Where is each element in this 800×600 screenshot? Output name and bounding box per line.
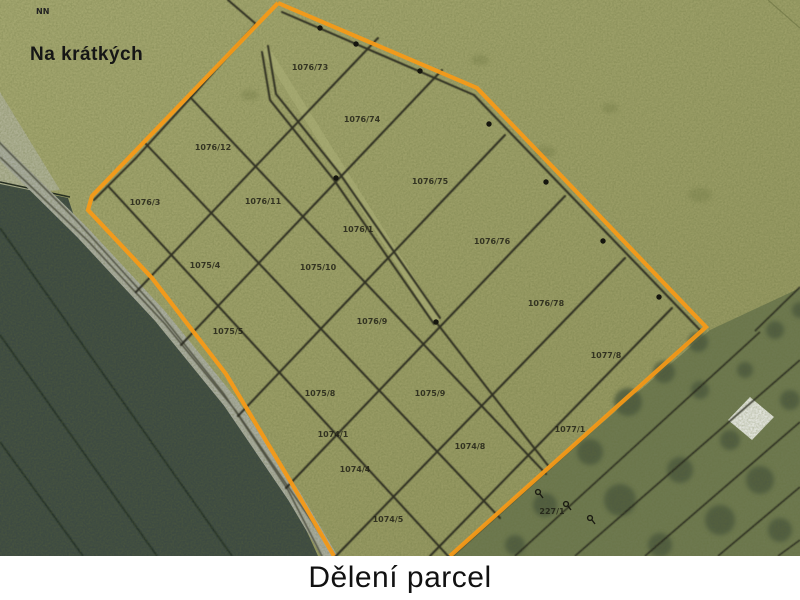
- boundary-point-dot: [317, 25, 322, 30]
- image-caption: Dělení parcel: [308, 561, 491, 595]
- parcel-label: 1076/11: [245, 197, 282, 206]
- parcel-label: 1075/5: [213, 327, 244, 336]
- caption-bar: Dělení parcel: [0, 556, 800, 600]
- parcel-label: 1075/8: [305, 389, 336, 398]
- boundary-point-dot: [656, 294, 661, 299]
- boundary-point-dot: [353, 41, 358, 46]
- parcel-label: 1076/74: [344, 115, 381, 124]
- parcel-label: 227/1: [539, 507, 565, 516]
- parcel-label: 1074/5: [373, 515, 404, 524]
- parcel-label: 1076/73: [292, 63, 328, 72]
- parcel-label: 1074/1: [318, 430, 349, 439]
- boundary-point-dot: [333, 175, 338, 180]
- parcel-label: 1076/1: [343, 225, 374, 234]
- parcel-label: 1076/3: [130, 198, 161, 207]
- parcel-label: 1075/9: [415, 389, 446, 398]
- parcel-label: 1075/10: [300, 263, 337, 272]
- photo-noise: [0, 0, 800, 556]
- aerial-map-container: 1076/731076/741076/751076/761076/781077/…: [0, 0, 800, 556]
- parcel-label: 1077/1: [555, 425, 586, 434]
- boundary-point-dot: [433, 319, 438, 324]
- parcel-label: 1076/75: [412, 177, 449, 186]
- boundary-point-dot: [600, 238, 605, 243]
- boundary-point-dot: [417, 68, 422, 73]
- parcel-label: 1075/4: [190, 261, 221, 270]
- parcel-label: 1076/76: [474, 237, 511, 246]
- boundary-point-dot: [486, 121, 491, 126]
- screenshot-stage: 1076/731076/741076/751076/761076/781077/…: [0, 0, 800, 600]
- cadastral-aerial-map: 1076/731076/741076/751076/761076/781077/…: [0, 0, 800, 556]
- boundary-point-dot: [543, 179, 548, 184]
- parcel-label: 1076/12: [195, 143, 231, 152]
- parcel-label: 1076/78: [528, 299, 565, 308]
- parcel-label: 1076/9: [357, 317, 388, 326]
- parcel-label: 1074/4: [340, 465, 371, 474]
- place-name-label: Na krátkých: [30, 44, 143, 65]
- parcel-label: 1074/8: [455, 442, 486, 451]
- corner-small-label: NN: [36, 7, 49, 16]
- parcel-label: 1077/8: [591, 351, 622, 360]
